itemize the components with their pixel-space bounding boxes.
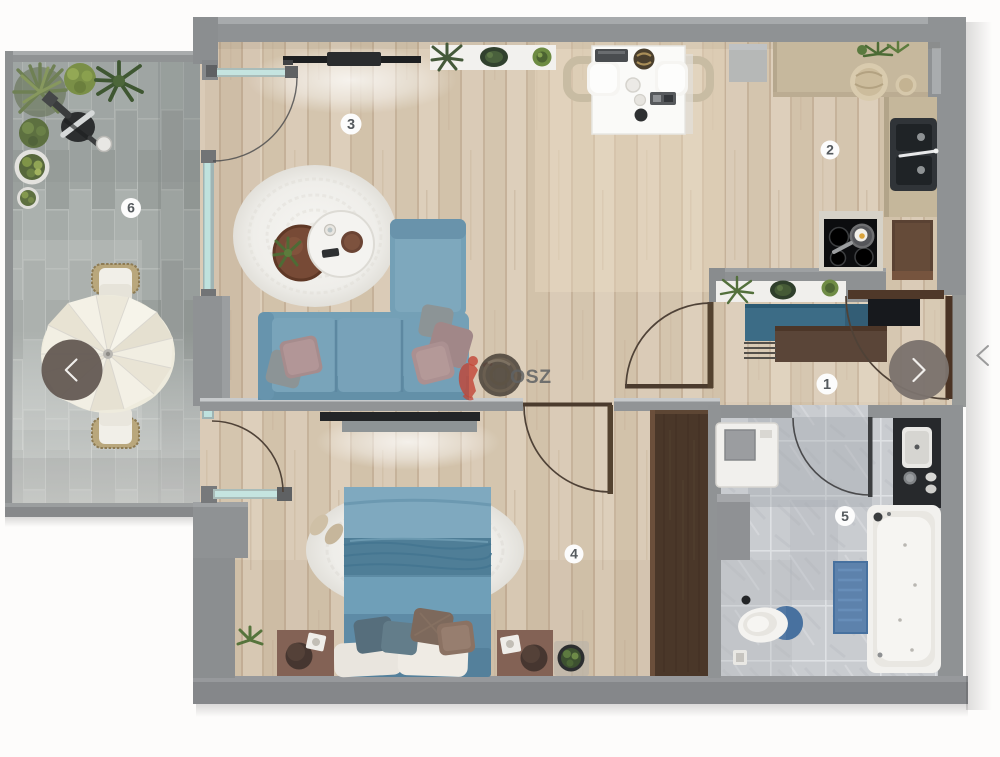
svg-text:1: 1 bbox=[823, 377, 831, 393]
svg-text:2: 2 bbox=[826, 142, 834, 158]
svg-text:6: 6 bbox=[127, 200, 135, 216]
svg-text:4: 4 bbox=[570, 546, 578, 562]
svg-text:3: 3 bbox=[347, 117, 355, 133]
svg-text:5: 5 bbox=[841, 508, 849, 524]
svg-text:OSZ: OSZ bbox=[510, 366, 552, 388]
